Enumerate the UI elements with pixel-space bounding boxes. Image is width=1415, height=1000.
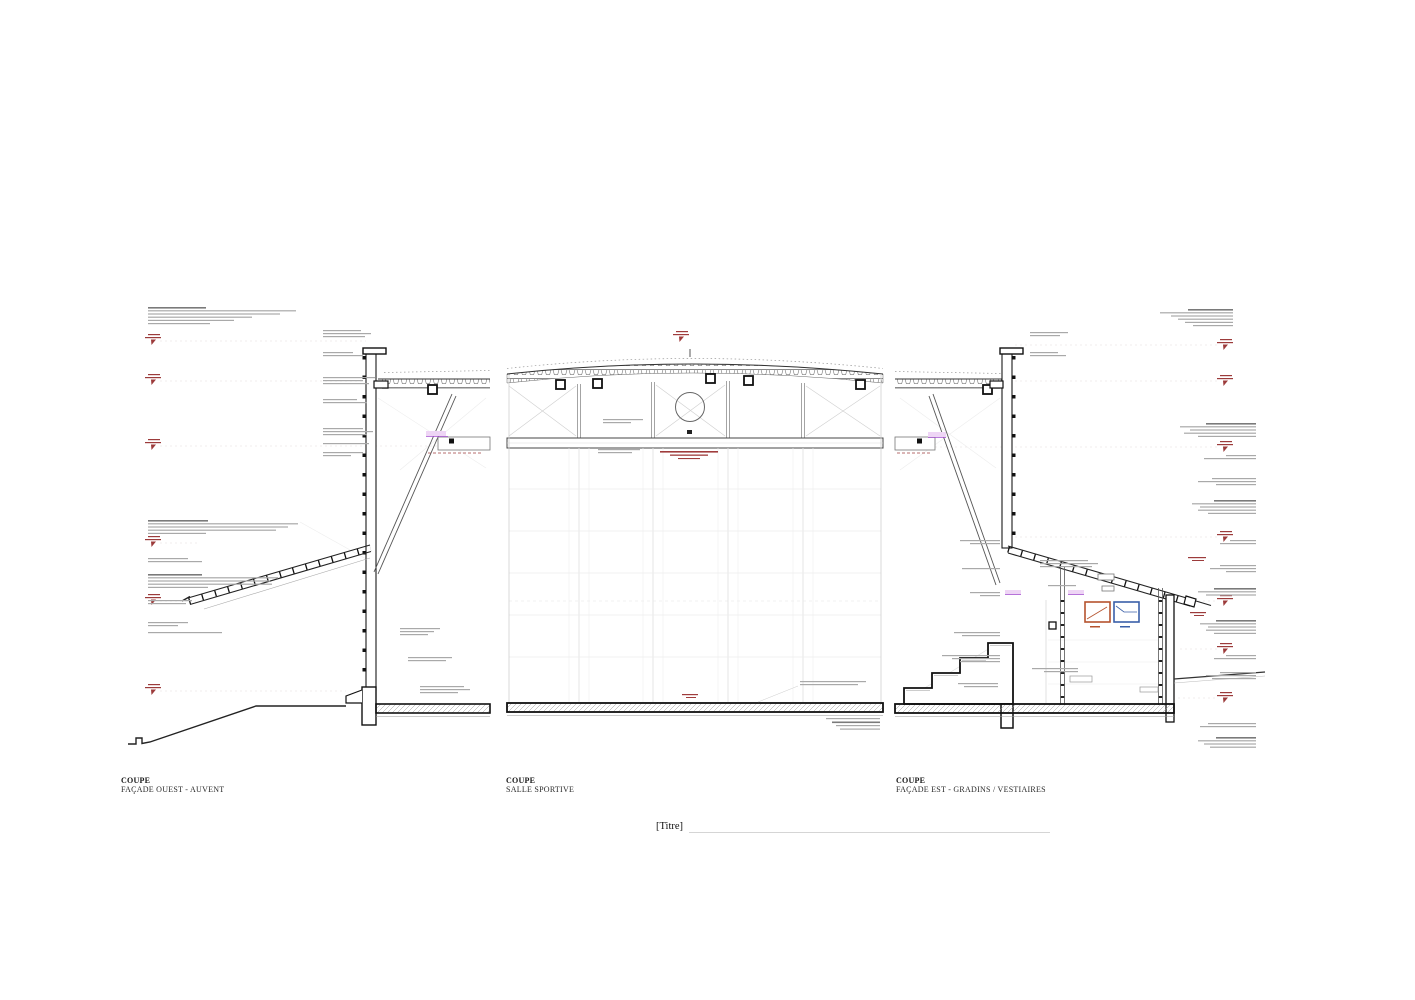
section-east-drawing [895, 309, 1265, 748]
hall-roof [507, 349, 883, 383]
west-wall-section [363, 348, 388, 690]
view-kind-label: COUPE [896, 776, 1046, 785]
view-title-west: COUPE FAÇADE OUEST - AUVENT [121, 776, 224, 794]
diagonal-brace-west [374, 394, 456, 574]
hall-gray-annotations [598, 419, 880, 730]
floor-slab-west [376, 704, 490, 717]
sheet-title-underline [689, 832, 1050, 833]
hall-red-annotations [660, 331, 718, 698]
drawing-sheet: COUPE FAÇADE OUEST - AUVENT COUPE SALLE … [0, 0, 1415, 1000]
section-west-drawing [128, 307, 490, 744]
floor-slab-east [895, 704, 1174, 717]
section-hall-drawing [507, 331, 883, 730]
selected-tag-highlight [426, 431, 446, 436]
view-kind-label: COUPE [121, 776, 224, 785]
view-name-label: FAÇADE OUEST - AUVENT [121, 785, 224, 794]
detail-callout-blue [1114, 602, 1139, 628]
annotations-west [148, 307, 470, 693]
view-name-label: FAÇADE EST - GRADINS / VESTIAIRES [896, 785, 1046, 794]
view-name-label: SALLE SPORTIVE [506, 785, 574, 794]
level-leader-lines-west [160, 341, 488, 691]
vestiaire-walls [1046, 567, 1174, 722]
circular-opening [676, 393, 705, 422]
east-wall-section [990, 348, 1023, 548]
projection-lines-east [900, 398, 1158, 684]
projection-lines-west [300, 398, 486, 560]
level-leader-lines-east [935, 345, 1218, 698]
ground-line-east [1174, 672, 1265, 683]
canopy-auvent [182, 545, 371, 609]
sheet-title-field[interactable]: [Titre] [656, 821, 683, 832]
view-title-hall: COUPE SALLE SPORTIVE [506, 776, 574, 794]
detail-callout-orange [1085, 602, 1110, 628]
hall-main-beam [507, 438, 883, 448]
view-kind-label: COUPE [506, 776, 574, 785]
level-markers-east [1188, 339, 1233, 703]
ground-line-west [128, 706, 346, 744]
sections-drawing [0, 0, 1415, 1000]
hall-floor-slab [507, 703, 883, 716]
selected-tags-east [1005, 590, 1084, 595]
level-markers-west [145, 334, 161, 695]
foundation-west [346, 687, 376, 725]
diagonal-brace-east [929, 394, 1000, 585]
view-title-east: COUPE FAÇADE EST - GRADINS / VESTIAIRES [896, 776, 1046, 794]
purlin-square-west [428, 385, 437, 394]
